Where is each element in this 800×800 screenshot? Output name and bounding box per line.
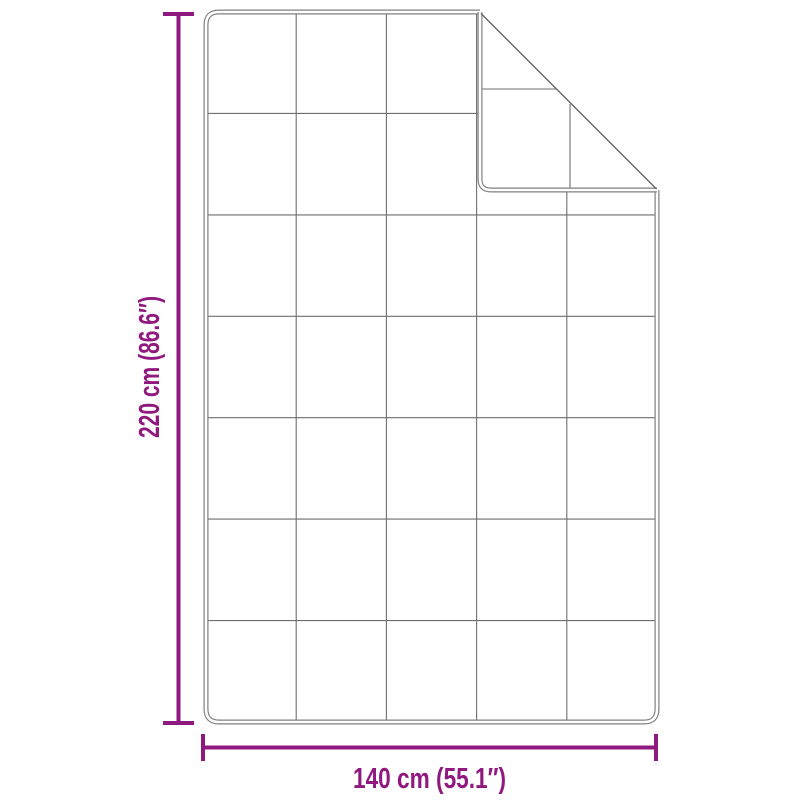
blanket-fill — [206, 12, 657, 722]
dimension-diagram: 220 cm (86.6″) 140 cm (55.1″) — [0, 0, 800, 800]
height-label: 220 cm (86.6″) — [134, 296, 166, 438]
width-label: 140 cm (55.1″) — [353, 763, 506, 795]
width-dimension: 140 cm (55.1″) — [203, 734, 656, 795]
blanket-diagram: 220 cm (86.6″) 140 cm (55.1″) — [0, 0, 800, 800]
blanket-body — [206, 12, 657, 722]
folded-corner — [480, 12, 657, 190]
height-dimension: 220 cm (86.6″) — [134, 14, 194, 723]
